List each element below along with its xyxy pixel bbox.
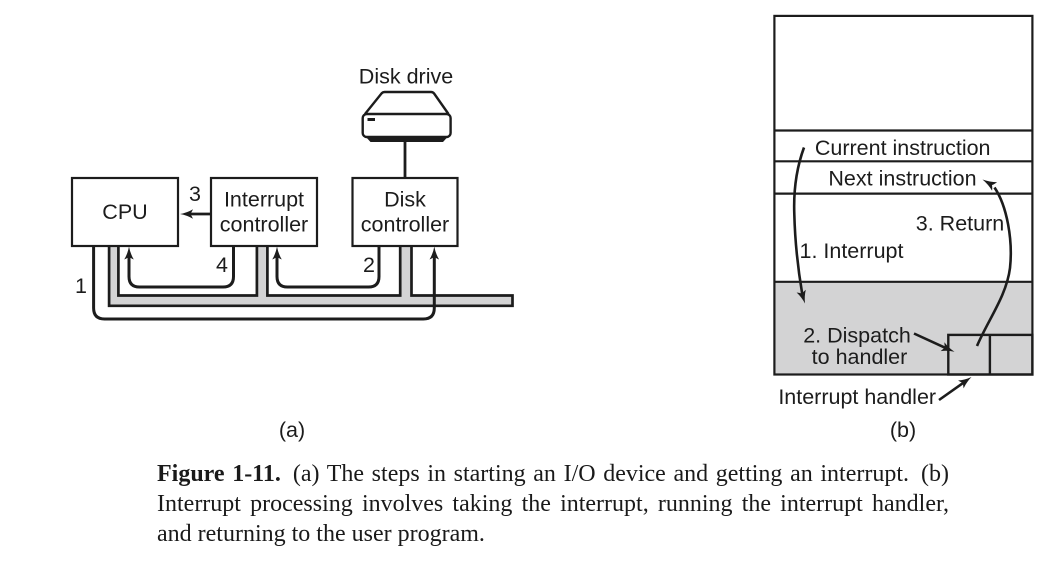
svg-text:Next instruction: Next instruction	[828, 167, 976, 191]
svg-text:Interrupt: Interrupt	[224, 188, 304, 212]
svg-text:Disk: Disk	[384, 188, 426, 212]
svg-text:to handler: to handler	[812, 345, 908, 369]
svg-text:controller: controller	[220, 213, 308, 237]
svg-text:Disk drive: Disk drive	[359, 65, 453, 89]
svg-text:Interrupt handler: Interrupt handler	[778, 385, 936, 409]
svg-text:4: 4	[216, 253, 228, 277]
svg-text:3: 3	[189, 182, 201, 206]
svg-text:(b): (b)	[890, 418, 916, 442]
svg-text:controller: controller	[361, 213, 449, 237]
svg-text:1. Interrupt: 1. Interrupt	[800, 239, 904, 263]
svg-text:(a): (a)	[279, 418, 305, 442]
svg-text:Current instruction: Current instruction	[815, 136, 991, 160]
svg-text:2: 2	[363, 253, 375, 277]
svg-text:1: 1	[75, 274, 87, 298]
svg-text:CPU: CPU	[102, 200, 147, 224]
svg-text:2. Dispatch: 2. Dispatch	[803, 324, 911, 348]
svg-text:3. Return: 3. Return	[916, 212, 1004, 236]
